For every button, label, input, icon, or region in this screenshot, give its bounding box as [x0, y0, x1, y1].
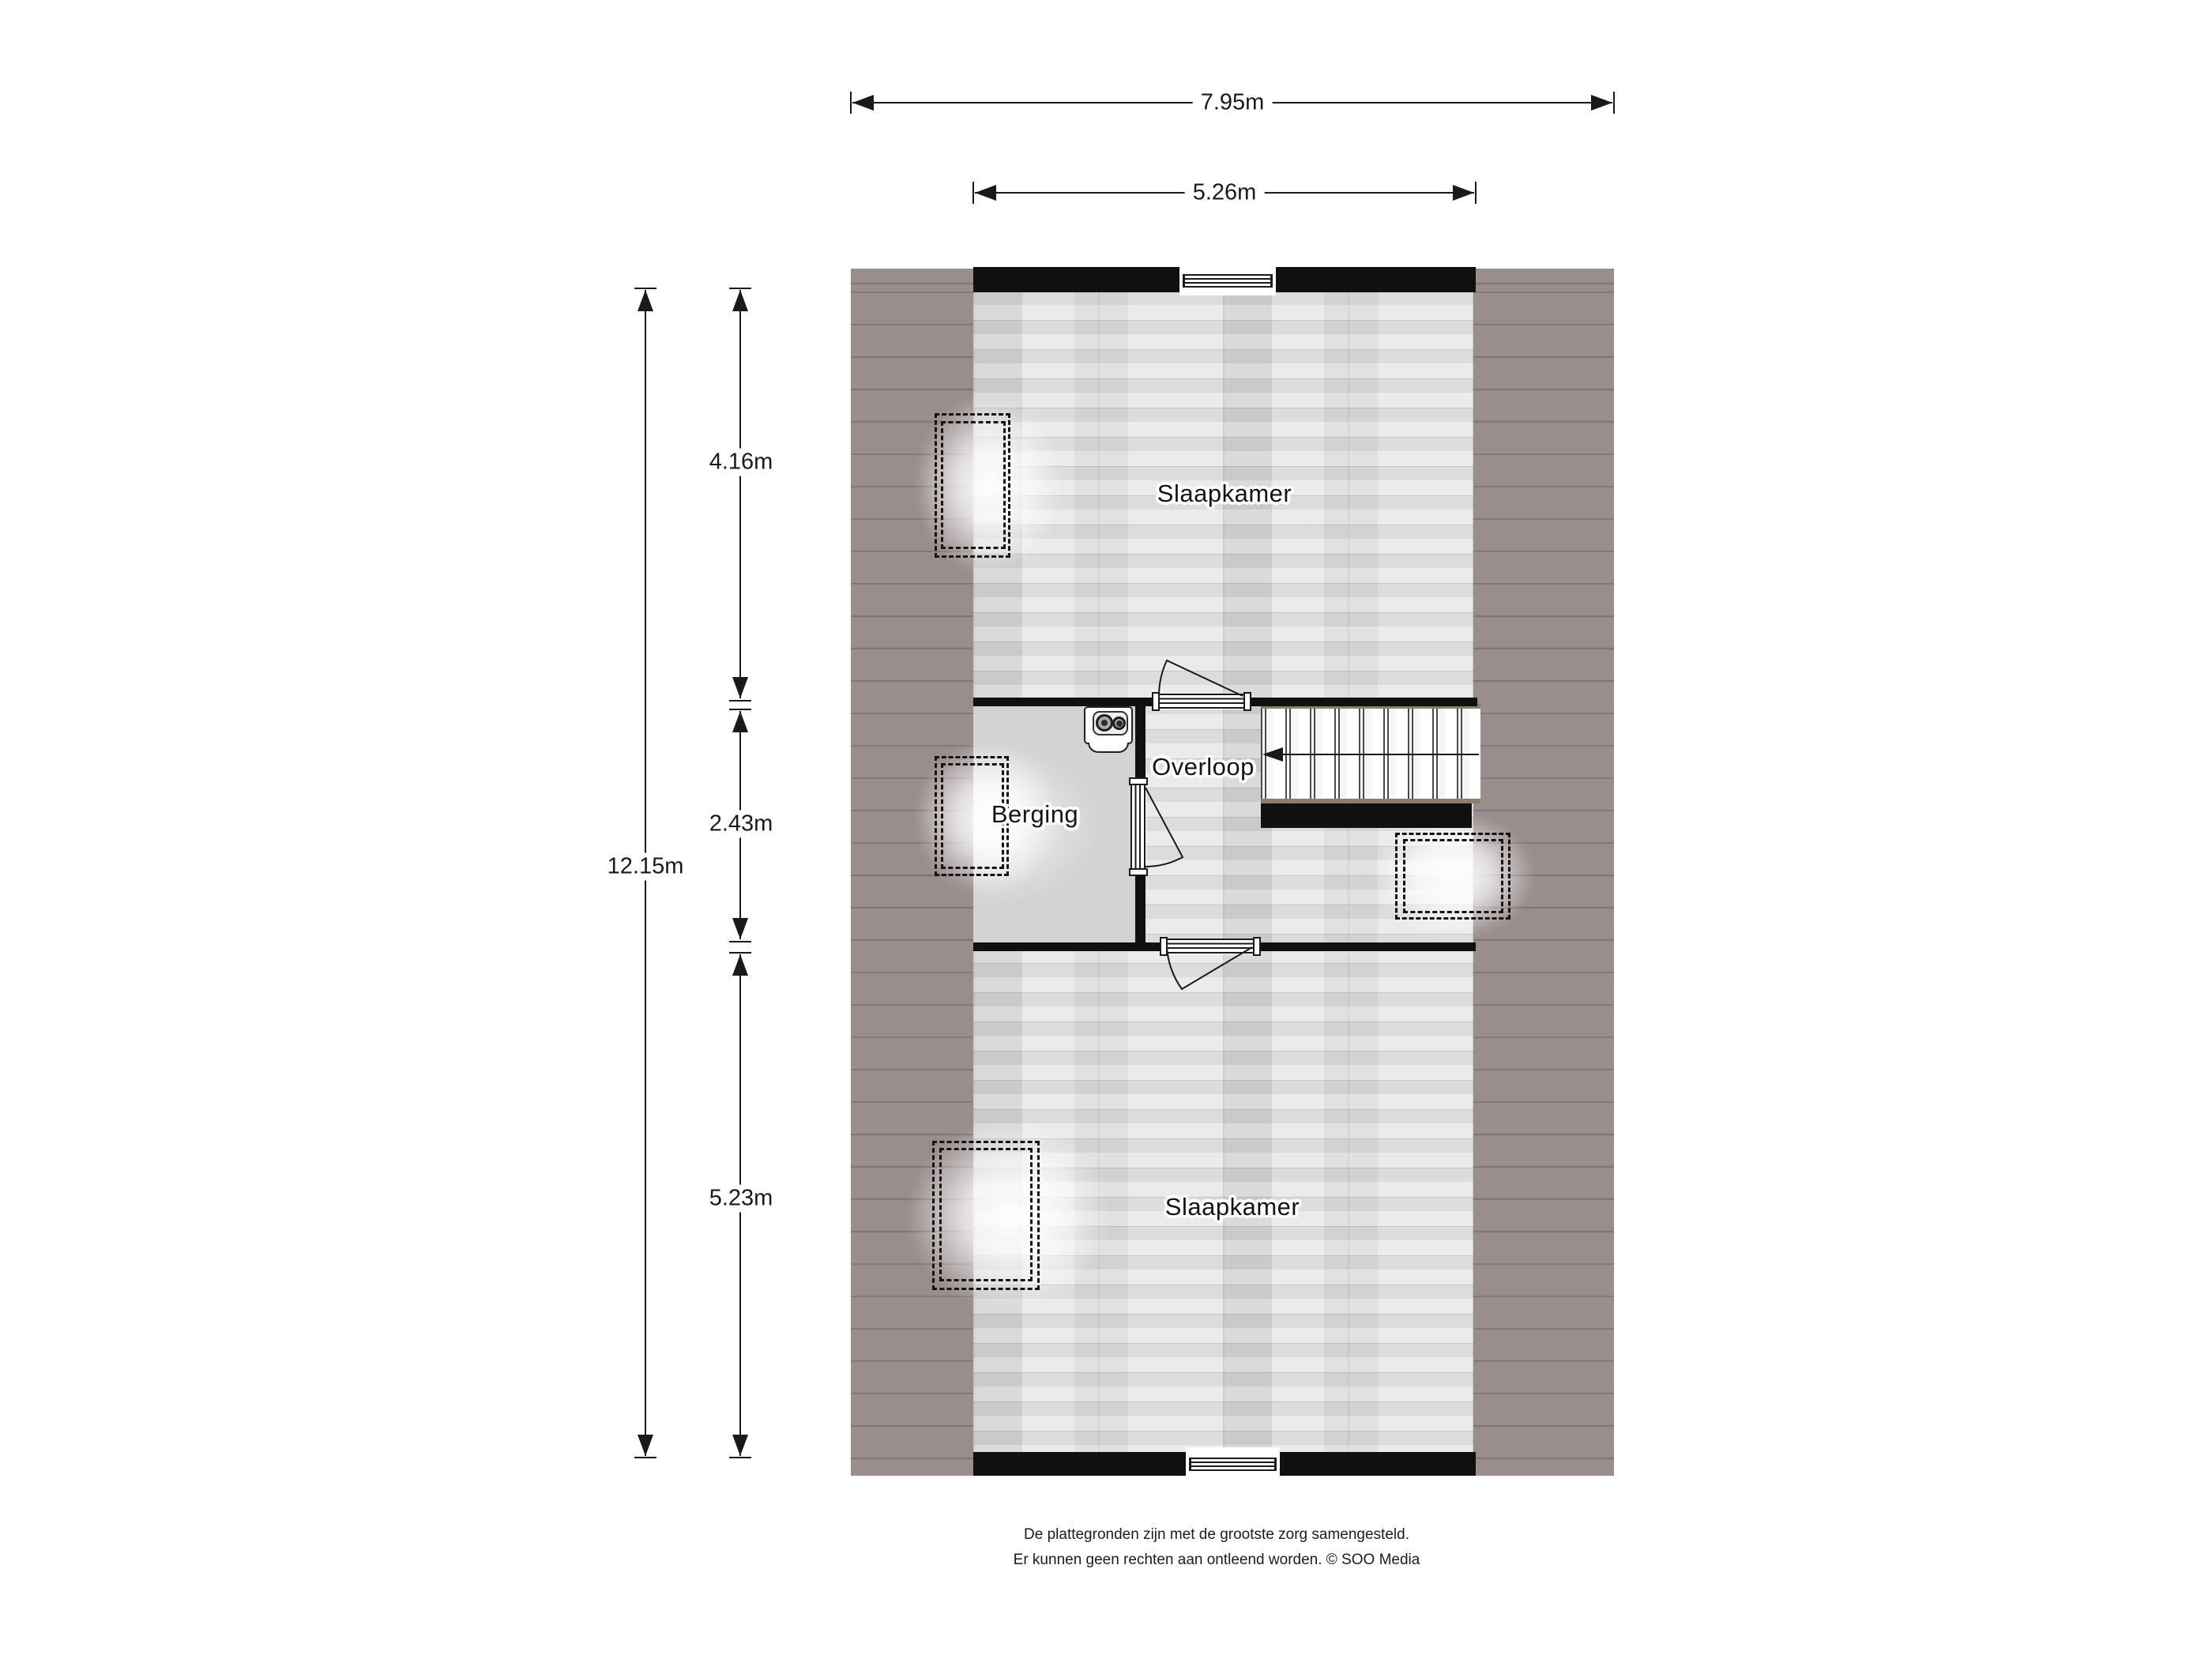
dim-arrow — [1453, 185, 1474, 201]
footer-line1: De plattegronden zijn met de grootste zo… — [822, 1522, 1612, 1548]
dim-label-inner-width: 5.26m — [1185, 179, 1265, 207]
dim-label-outer-height: 12.15m — [600, 853, 692, 881]
dim-label-outer-width: 7.95m — [1193, 89, 1273, 117]
dim-label-segment-middle: 2.43m — [702, 811, 781, 838]
dim-arrow — [732, 918, 748, 939]
dim-arrow — [732, 1435, 748, 1456]
room-label-storage: Berging — [991, 800, 1078, 829]
dim-arrow — [732, 954, 748, 976]
door-swing-upper — [1159, 660, 1243, 696]
dim-label-segment-bottom: 5.23m — [702, 1185, 781, 1213]
door-swing-lower — [1167, 947, 1252, 989]
room-label-bedroom-top: Slaapkamer — [1157, 480, 1292, 508]
dim-arrow — [1591, 95, 1612, 111]
linework-overlay — [0, 0, 2212, 1659]
dim-label-segment-top: 4.16m — [702, 449, 781, 476]
footer-line2: Er kunnen geen rechten aan ontleend word… — [822, 1548, 1612, 1573]
dim-arrow — [975, 185, 996, 201]
dim-arrow — [638, 1435, 653, 1456]
dim-arrow — [638, 290, 653, 311]
floorplan-canvas: Slaapkamer Overloop Berging Slaapkamer 7… — [0, 0, 2212, 1659]
room-label-bedroom-bottom: Slaapkamer — [1165, 1193, 1300, 1221]
door-swing-berging — [1145, 788, 1183, 867]
dim-arrow — [732, 711, 748, 732]
dim-arrow — [732, 677, 748, 698]
room-label-landing: Overloop — [1152, 753, 1255, 781]
dim-arrow — [732, 290, 748, 311]
footer-disclaimer: De plattegronden zijn met de grootste zo… — [822, 1522, 1612, 1573]
dim-arrow — [852, 95, 874, 111]
stair-arrowhead — [1262, 747, 1283, 762]
